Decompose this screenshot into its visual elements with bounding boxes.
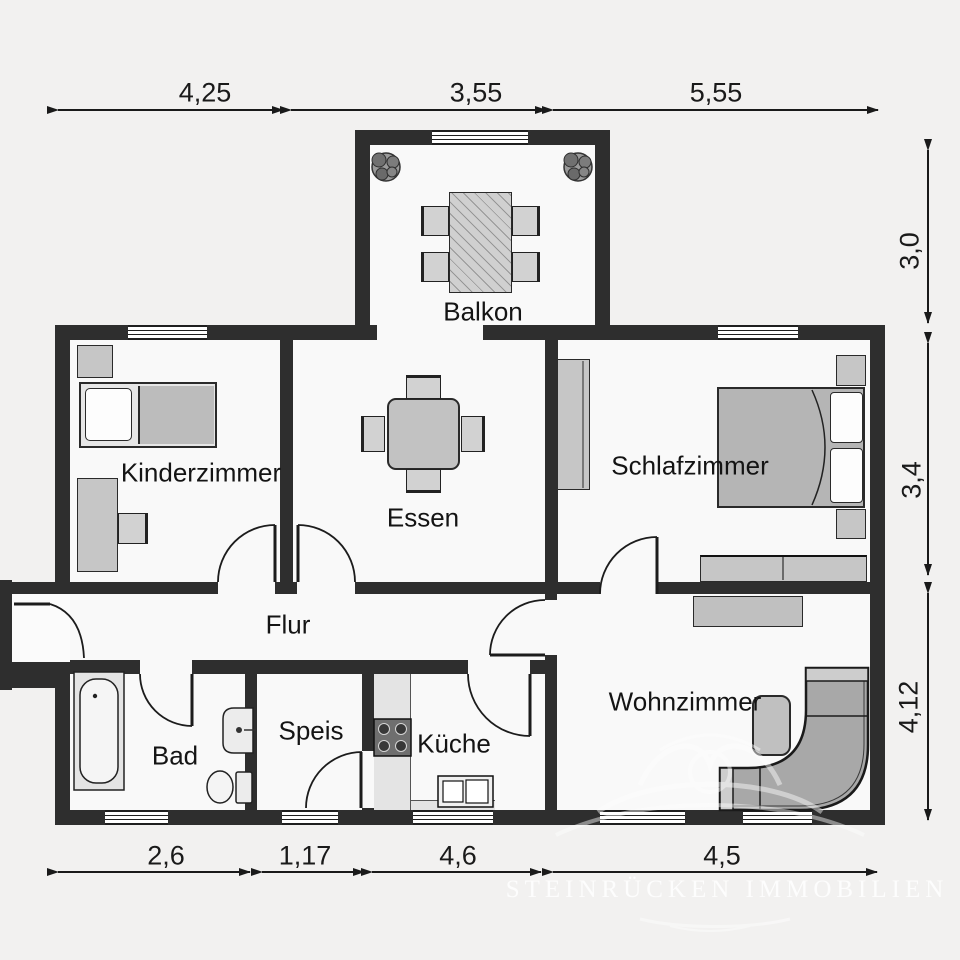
room-label-kueche: Küche (417, 729, 491, 760)
nightstand (836, 355, 866, 386)
dining-chair-west (361, 416, 385, 452)
balcony-chair (421, 206, 449, 236)
wall (545, 340, 558, 594)
dim-bottom-1: 2,6 (147, 841, 185, 872)
pillow (85, 388, 132, 441)
dim-bottom-4: 4,5 (703, 841, 741, 872)
door-opening-kueche (468, 660, 530, 674)
door-opening-speis (362, 751, 374, 808)
dim-bottom-3: 4,6 (439, 841, 477, 872)
balcony-table (449, 192, 512, 293)
dim-right-3: 4,12 (894, 681, 925, 734)
room-label-wohnzimmer: Wohnzimmer (609, 687, 762, 718)
door-opening-schlafzimmer (600, 582, 657, 594)
dining-chair-north (406, 375, 441, 399)
dim-top-2: 3,55 (450, 78, 503, 109)
nightstand (77, 345, 113, 378)
wall (355, 130, 370, 340)
pillow (830, 448, 863, 503)
balcony-chair (512, 252, 540, 282)
room-label-essen: Essen (387, 503, 459, 534)
room-label-kinderzimmer: Kinderzimmer (121, 458, 281, 489)
dresser-divider (782, 557, 784, 580)
wall (12, 582, 870, 594)
wall (545, 655, 557, 810)
sideboard (693, 596, 803, 627)
nightstand (836, 509, 866, 539)
kitchen-counter (374, 674, 411, 810)
desk-chair (118, 513, 148, 544)
window-schlafzimmer (718, 325, 798, 340)
window-bad (105, 810, 168, 825)
window-kinderzimmer (128, 325, 207, 340)
window-balcony (432, 130, 528, 145)
dining-chair-east (461, 416, 485, 452)
dim-bottom-2: 1,17 (279, 841, 332, 872)
wall (245, 674, 257, 810)
desk (77, 478, 118, 572)
wall (870, 325, 885, 825)
door-opening-essen (297, 582, 355, 594)
floor-plan: Kinderzimmer Essen Schlafzimmer Balkon F… (0, 0, 960, 960)
watermark-text: STEINRÜCKEN IMMOBILIEN (506, 876, 949, 904)
kitchen-counter (411, 800, 495, 810)
window-wohnzimmer-1 (600, 810, 685, 825)
room-label-schlafzimmer: Schlafzimmer (611, 451, 768, 482)
room-label-speis: Speis (278, 716, 343, 747)
balcony-chair (421, 252, 449, 282)
room-label-flur: Flur (266, 610, 311, 641)
wardrobe (557, 359, 590, 490)
wall (595, 130, 610, 340)
dim-top-1: 4,25 (179, 78, 232, 109)
dim-right-1: 3,0 (895, 232, 926, 270)
dim-right-2: 3,4 (897, 461, 928, 499)
window-wohnzimmer-2 (743, 810, 812, 825)
door-opening-wohnzimmer (545, 600, 557, 655)
wall (12, 662, 55, 688)
window-speis (282, 810, 338, 825)
dining-chair-south (406, 469, 441, 493)
wall (0, 580, 12, 690)
entrance-opening (12, 594, 70, 662)
window-kueche (413, 810, 493, 825)
blanket (138, 386, 214, 444)
room-label-balkon: Balkon (443, 297, 523, 328)
wall (55, 325, 70, 825)
pillow (830, 392, 863, 443)
dim-top-3: 5,55 (690, 78, 743, 109)
balcony-chair (512, 206, 540, 236)
wall (280, 340, 293, 582)
dining-table (387, 398, 460, 470)
door-opening-bad (140, 660, 192, 674)
door-opening-kinderzimmer (218, 582, 275, 594)
room-label-bad: Bad (152, 741, 198, 772)
